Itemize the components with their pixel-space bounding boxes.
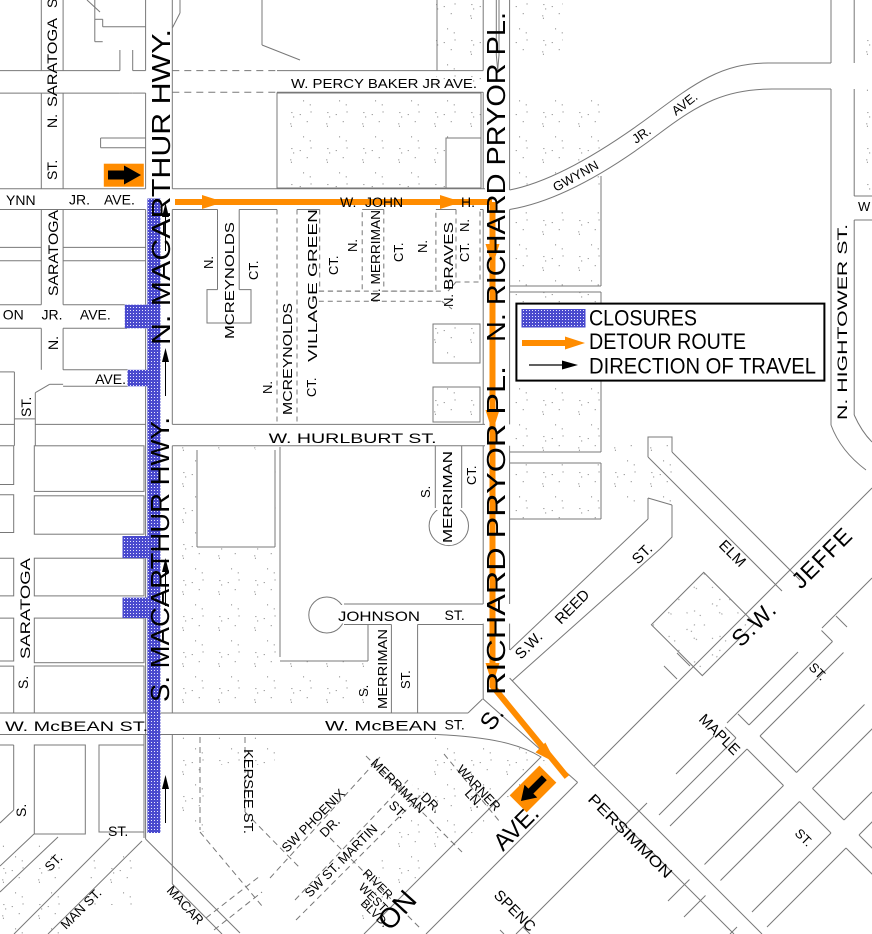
svg-text:H.: H. bbox=[461, 194, 475, 210]
svg-text:ST.: ST. bbox=[108, 823, 128, 839]
svg-text:AVE.: AVE. bbox=[104, 192, 135, 208]
svg-text:AVE.: AVE. bbox=[80, 307, 111, 323]
svg-text:RICHARD PRYOR PL.: RICHARD PRYOR PL. bbox=[481, 366, 511, 695]
svg-text:N. MACARTHUR HWY.: N. MACARTHUR HWY. bbox=[146, 29, 176, 345]
svg-text:ST.: ST. bbox=[398, 670, 413, 689]
svg-text:JR.: JR. bbox=[42, 307, 63, 323]
svg-text:DETOUR ROUTE: DETOUR ROUTE bbox=[589, 329, 746, 354]
svg-text:ST.: ST. bbox=[445, 607, 465, 623]
svg-text:S.: S. bbox=[13, 804, 29, 817]
svg-text:ST.: ST. bbox=[44, 160, 60, 180]
svg-text:W.: W. bbox=[340, 194, 356, 210]
svg-text:N.: N. bbox=[457, 219, 472, 232]
svg-text:KERSEE ST.: KERSEE ST. bbox=[241, 749, 256, 834]
svg-text:N. MERRIMAN: N. MERRIMAN bbox=[368, 210, 383, 302]
svg-text:S. MACARTHUR HWY.: S. MACARTHUR HWY. bbox=[145, 417, 175, 702]
svg-text:SARATOGA: SARATOGA bbox=[44, 17, 60, 107]
svg-text:W. HURLBURT ST.: W. HURLBURT ST. bbox=[269, 430, 437, 446]
svg-text:CT.: CT. bbox=[391, 243, 406, 263]
svg-text:ON: ON bbox=[3, 307, 24, 323]
svg-text:N.: N. bbox=[345, 239, 360, 252]
svg-text:CT.: CT. bbox=[304, 378, 319, 398]
svg-text:S.: S. bbox=[15, 676, 31, 689]
svg-text:N.: N. bbox=[45, 336, 61, 350]
svg-text:AVE.: AVE. bbox=[95, 371, 126, 387]
svg-text:N.: N. bbox=[260, 381, 275, 394]
svg-text:W. McBEAN ST.: W. McBEAN ST. bbox=[5, 718, 148, 734]
svg-text:CT.: CT. bbox=[326, 256, 341, 276]
svg-text:ST.: ST. bbox=[445, 717, 465, 733]
svg-text:SARATOGA: SARATOGA bbox=[17, 557, 33, 659]
svg-text:CLOSURES: CLOSURES bbox=[589, 306, 697, 331]
svg-text:N.: N. bbox=[201, 256, 216, 269]
svg-text:JR.: JR. bbox=[69, 192, 90, 208]
svg-text:CT.: CT. bbox=[457, 243, 472, 263]
svg-text:DIRECTION OF TRAVEL: DIRECTION OF TRAVEL bbox=[589, 354, 816, 379]
svg-text:S.: S. bbox=[356, 685, 371, 697]
svg-text:JOHNSON: JOHNSON bbox=[338, 608, 420, 624]
svg-text:MERRIMAN: MERRIMAN bbox=[440, 451, 455, 543]
svg-text:SARATOGA: SARATOGA bbox=[45, 209, 61, 296]
svg-text:YNN: YNN bbox=[6, 192, 36, 208]
svg-text:N. HIGHTOWER ST.: N. HIGHTOWER ST. bbox=[834, 224, 850, 420]
svg-text:JOHN: JOHN bbox=[365, 194, 403, 210]
svg-text:VILLAGE GREEN: VILLAGE GREEN bbox=[305, 209, 320, 362]
svg-text:W. McBEAN: W. McBEAN bbox=[325, 718, 437, 734]
svg-text:ST.: ST. bbox=[18, 397, 34, 417]
svg-text:W. PERCY BAKER JR AVE.: W. PERCY BAKER JR AVE. bbox=[291, 76, 477, 91]
svg-text:CT.: CT. bbox=[246, 261, 261, 281]
svg-text:CT.: CT. bbox=[464, 466, 479, 486]
svg-text:N. RICHARD PRYOR PL.: N. RICHARD PRYOR PL. bbox=[481, 12, 511, 342]
svg-text:MCREYNOLDS: MCREYNOLDS bbox=[222, 222, 237, 339]
svg-text:BRAVES: BRAVES bbox=[441, 222, 456, 290]
svg-text:N.: N. bbox=[415, 240, 430, 253]
svg-text:N.: N. bbox=[441, 294, 456, 307]
svg-text:S.: S. bbox=[418, 486, 433, 498]
svg-text:MERRIMAN: MERRIMAN bbox=[375, 629, 390, 709]
svg-text:N.: N. bbox=[44, 114, 60, 128]
svg-text:W: W bbox=[858, 199, 871, 214]
svg-text:MCREYNOLDS: MCREYNOLDS bbox=[280, 303, 295, 415]
svg-text:S.: S. bbox=[44, 0, 60, 8]
